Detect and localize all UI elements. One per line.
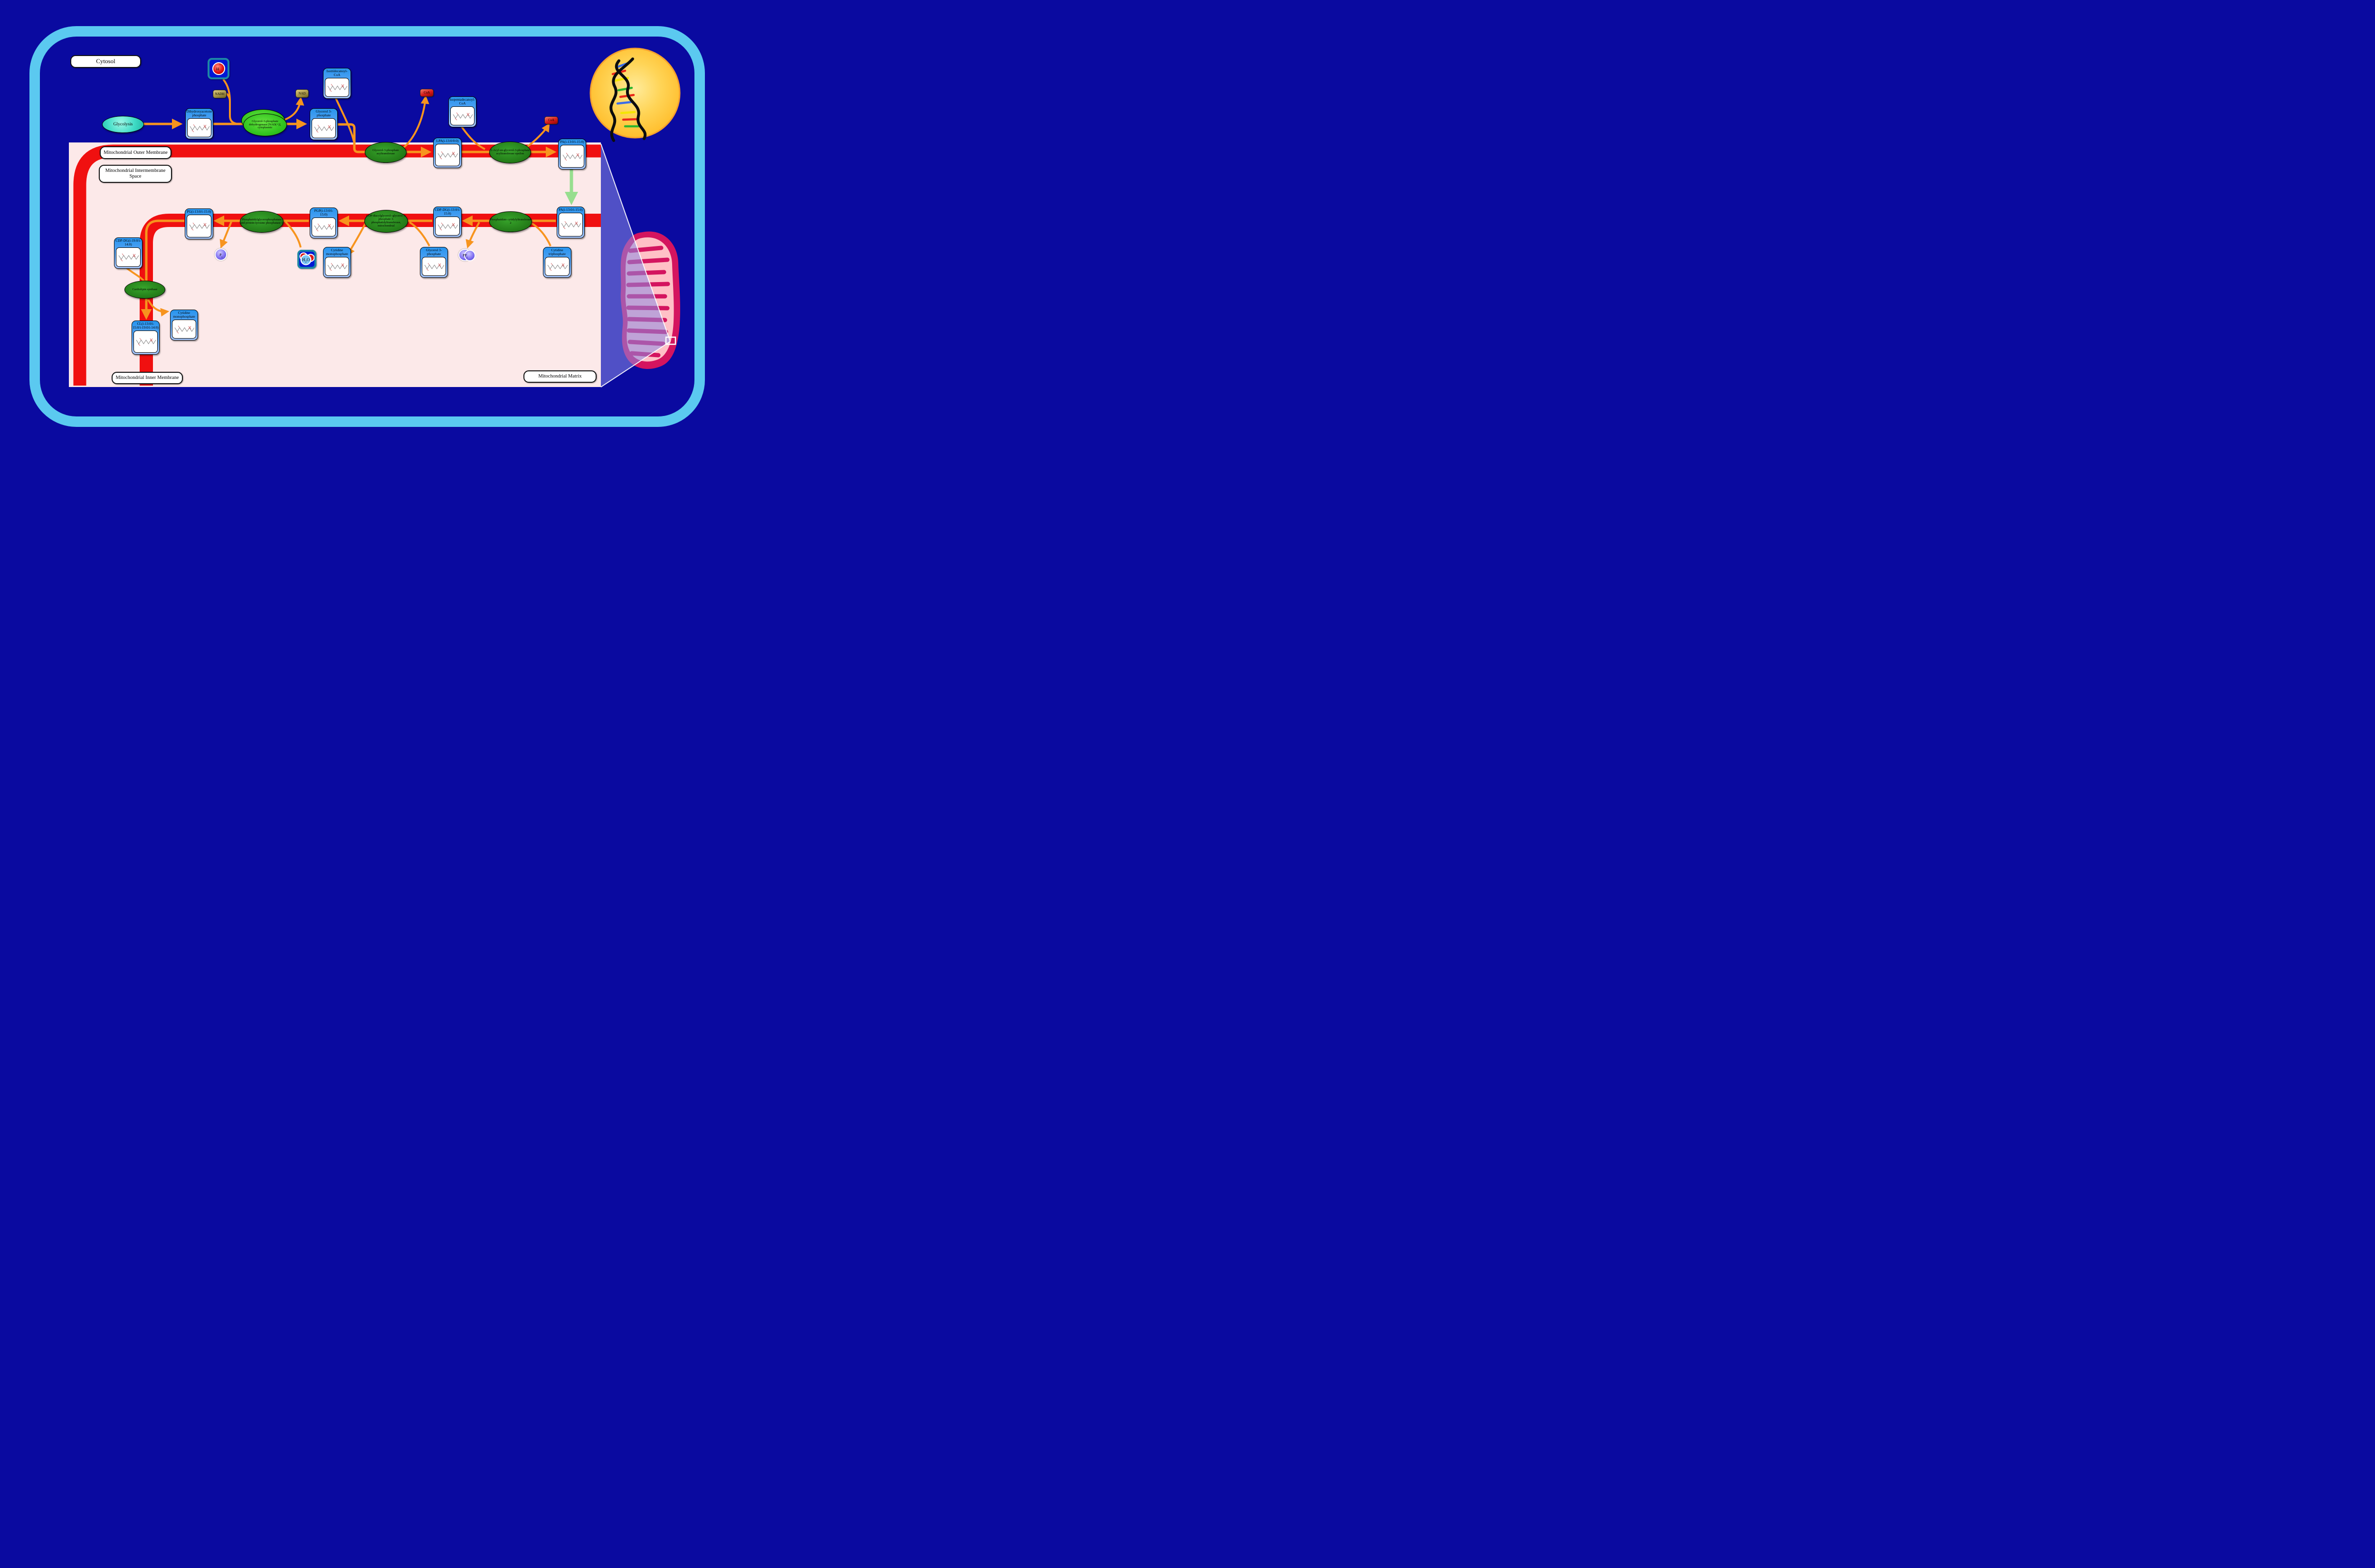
cofactor-h_plus[interactable]: H+ bbox=[208, 58, 229, 79]
enzyme-pgs1[interactable]: CDP-diacylglycerol--glycerol-3-phosphate… bbox=[364, 210, 408, 233]
enzyme-gpat[interactable]: Glycerol-3-phosphate acyltransferase bbox=[365, 142, 407, 163]
metabolite-cmp_low[interactable]: Cytidine monophosphate bbox=[170, 310, 198, 340]
edge-input-isotridecanoyl-coa bbox=[336, 98, 354, 142]
metabolite-label: Glycerol 3-phosphate bbox=[420, 247, 447, 256]
metabolite-label: CDP-DG(i-13:0/i-15:0) bbox=[434, 207, 461, 216]
molecule-structure-icon bbox=[545, 257, 570, 276]
cofactor-coa_1[interactable]: CoA bbox=[420, 89, 434, 97]
metabolite-label: Cytidine monophosphate bbox=[323, 247, 351, 256]
label-inner-membrane: Mitochondrial Inner Membrane bbox=[112, 372, 183, 384]
metabolite-pa_mid[interactable]: PA(i-13:0/i-15:0) bbox=[557, 207, 585, 238]
molecule-structure-icon bbox=[435, 217, 460, 236]
metabolite-lpa[interactable]: LPA(i-13:0/0:0) bbox=[433, 138, 462, 168]
metabolite-pgp[interactable]: PGP(i-13:0/i-15:0) bbox=[310, 208, 338, 238]
molecule-structure-icon bbox=[312, 118, 336, 138]
edge-input-h-plus bbox=[223, 79, 238, 124]
metabolite-cl[interactable]: CL(i-13:0/i-15:0/i-19:0/i-14:0) bbox=[132, 321, 160, 355]
label-matrix: Mitochondrial Matrix bbox=[523, 370, 597, 383]
enzyme-agpat[interactable]: 1-Acyl-sn-glycerol-3-phosphate acyltrans… bbox=[489, 142, 531, 163]
molecule-structure-icon bbox=[187, 118, 211, 137]
molecule-structure-icon bbox=[133, 331, 158, 353]
metabolite-cmp_mid[interactable]: Cytidine monophosphate bbox=[323, 247, 351, 278]
molecule-structure-icon bbox=[435, 144, 460, 166]
cofactor-coa_2[interactable]: CoA bbox=[544, 116, 558, 124]
cofactor-nadh[interactable]: NADH bbox=[213, 90, 227, 98]
metabolite-label: LPA(i-13:0/0:0) bbox=[434, 138, 461, 143]
label-cytosol: Cytosol bbox=[70, 55, 141, 68]
molecule-structure-icon bbox=[172, 320, 196, 339]
metabolite-ctp[interactable]: Cytidine triphosphate bbox=[543, 247, 571, 278]
enzyme-cls[interactable]: Cardiolipin synthase bbox=[124, 281, 165, 299]
cofactor-pi[interactable]: Pi bbox=[215, 248, 227, 261]
molecule-structure-icon bbox=[450, 106, 475, 125]
water-molecule-icon: H2O bbox=[299, 252, 314, 267]
pathway-canvas: Cytosol Mitochondrial Outer Membrane Mit… bbox=[0, 0, 745, 455]
enzyme-ptpmt1[interactable]: Phosphatidylglycerophosphatase and prote… bbox=[240, 211, 284, 233]
nucleus-dna-icon bbox=[590, 48, 680, 141]
metabolite-isotridecanoyl_coa[interactable]: Isotridecanoyl-CoA bbox=[323, 68, 351, 99]
enzyme-cds2[interactable]: Phosphatidate cytidylyltransferase 2 bbox=[489, 211, 532, 232]
molecule-structure-icon bbox=[312, 217, 336, 236]
edge-output-coa-1 bbox=[402, 97, 426, 149]
cofactor-nad[interactable]: NAD bbox=[295, 89, 309, 98]
molecule-structure-icon bbox=[187, 215, 211, 237]
process-glycolysis[interactable]: Glycolysis bbox=[102, 116, 144, 133]
metabolite-label: PGP(i-13:0/i-15:0) bbox=[310, 208, 337, 217]
metabolite-g3p_top[interactable]: Glycerol 3-phosphate bbox=[310, 108, 338, 140]
metabolite-isopentadecanoyl_coa[interactable]: Isopentadecanoyl-CoA bbox=[448, 96, 476, 127]
molecule-structure-icon bbox=[422, 257, 446, 276]
metabolite-label: Isopentadecanoyl-CoA bbox=[449, 97, 476, 106]
metabolite-label: Isotridecanoyl-CoA bbox=[323, 68, 351, 77]
metabolite-label: Glycerol 3-phosphate bbox=[310, 109, 337, 118]
metabolite-label: Cytidine monophosphate bbox=[171, 310, 198, 319]
metabolite-label: CDP-DG(i-19:0/i-14:0) bbox=[114, 238, 142, 247]
metabolite-label: PA(i-13:0/i-15:0) bbox=[557, 207, 584, 212]
metabolite-cdpdg_13_15[interactable]: CDP-DG(i-13:0/i-15:0) bbox=[433, 207, 462, 237]
metabolite-dhap[interactable]: Dihydroxyacetone phosphate bbox=[185, 108, 213, 139]
metabolite-label: PA(i-13:0/i-15:0) bbox=[559, 139, 586, 144]
cofactor-ppi[interactable]: PPi bbox=[458, 249, 472, 261]
molecule-structure-icon bbox=[560, 145, 584, 168]
metabolite-label: Cytidine triphosphate bbox=[543, 247, 571, 256]
metabolite-cdpdg_19_14[interactable]: CDP-DG(i-19:0/i-14:0) bbox=[114, 237, 142, 269]
proton-icon: H+ bbox=[212, 62, 225, 75]
metabolite-pa_top[interactable]: PA(i-13:0/i-15:0) bbox=[558, 139, 586, 170]
molecule-structure-icon bbox=[559, 213, 583, 236]
label-intermembrane-space: Mitochondrial Intermembrane Space bbox=[99, 165, 172, 183]
metabolite-pg[interactable]: PG(i-13:0/i-15:0) bbox=[185, 208, 213, 239]
enzyme-gpd_cyto[interactable]: Glycerol-3-phosphate dehydrogenase [NAD(… bbox=[243, 113, 287, 136]
label-outer-membrane: Mitochondrial Outer Membrane bbox=[100, 146, 171, 159]
molecule-structure-icon bbox=[325, 78, 349, 97]
molecule-structure-icon bbox=[325, 257, 349, 276]
metabolite-label: CL(i-13:0/i-15:0/i-19:0/i-14:0) bbox=[132, 321, 159, 330]
molecule-structure-icon bbox=[116, 247, 141, 267]
metabolite-g3p_low[interactable]: Glycerol 3-phosphate bbox=[420, 247, 448, 278]
metabolite-label: PG(i-13:0/i-15:0) bbox=[185, 209, 213, 214]
metabolite-label: Dihydroxyacetone phosphate bbox=[186, 109, 213, 118]
cofactor-h2o[interactable]: H2O bbox=[297, 250, 316, 269]
